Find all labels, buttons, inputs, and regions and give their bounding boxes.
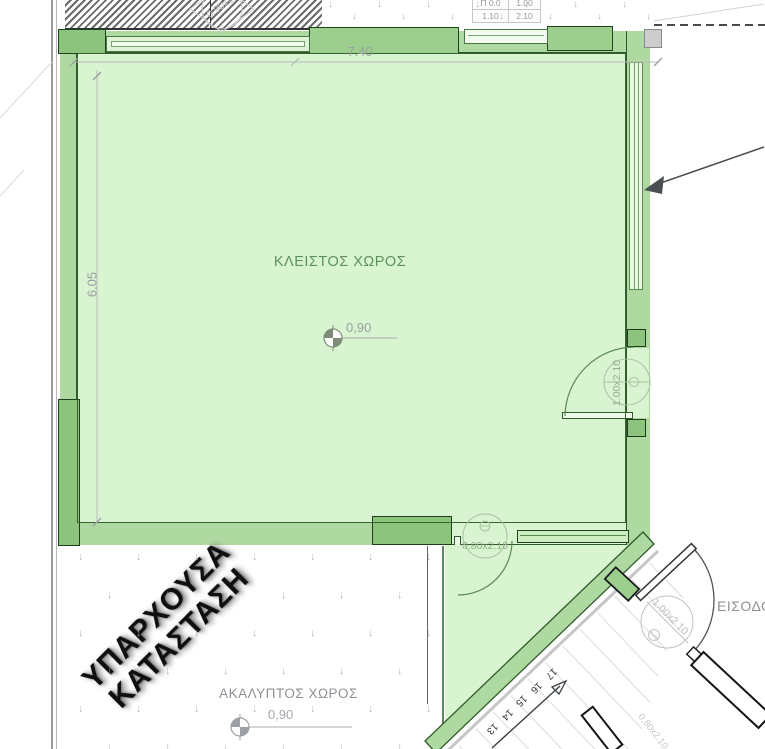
- theta-icon: [480, 521, 490, 531]
- theta-icon: [630, 378, 639, 387]
- schedule-cell: 2.10: [508, 9, 541, 23]
- watermark-existing-condition: ΥΠΑΡΧΟΥΣΑ ΚΑΤΑΣΤΑΣΗ: [48, 545, 288, 710]
- entrance-label: ΕΙΣΟΔΟ: [717, 598, 765, 614]
- leader-arrow: [644, 147, 764, 194]
- theta-icon: [649, 630, 660, 641]
- door-bottom-tag-label: 0.80x2.10: [447, 540, 523, 552]
- property-line: [0, 62, 52, 118]
- floor-plan-canvas: Π 0.0 1.00 1.10 2.10 ΚΛΕΙΣΤΟΣ ΧΩΡΟΣ 7.40…: [0, 0, 765, 749]
- room-label: ΚΛΕΙΣΤΟΣ ΧΩΡΟΣ: [240, 254, 440, 270]
- schedule-cell: 1.10: [472, 9, 509, 23]
- opening-schedule-table: Π 0.0 1.00 1.10 2.10: [473, 0, 541, 23]
- dim-top-label: 7.40: [325, 44, 395, 59]
- door-corner-leaf: [582, 707, 623, 749]
- stair-tread-line: [580, 629, 650, 703]
- stair-tread-line: [598, 613, 659, 677]
- dim-left-label: 6.05: [85, 255, 100, 315]
- dimension-top: [70, 58, 662, 66]
- door-right-tag-label: 1.00x2.10: [611, 351, 623, 415]
- faint-diagonal: [654, 4, 764, 21]
- stair-tread-line: [563, 646, 642, 729]
- property-line: [0, 170, 24, 196]
- level-room-label: 0,90: [346, 320, 371, 335]
